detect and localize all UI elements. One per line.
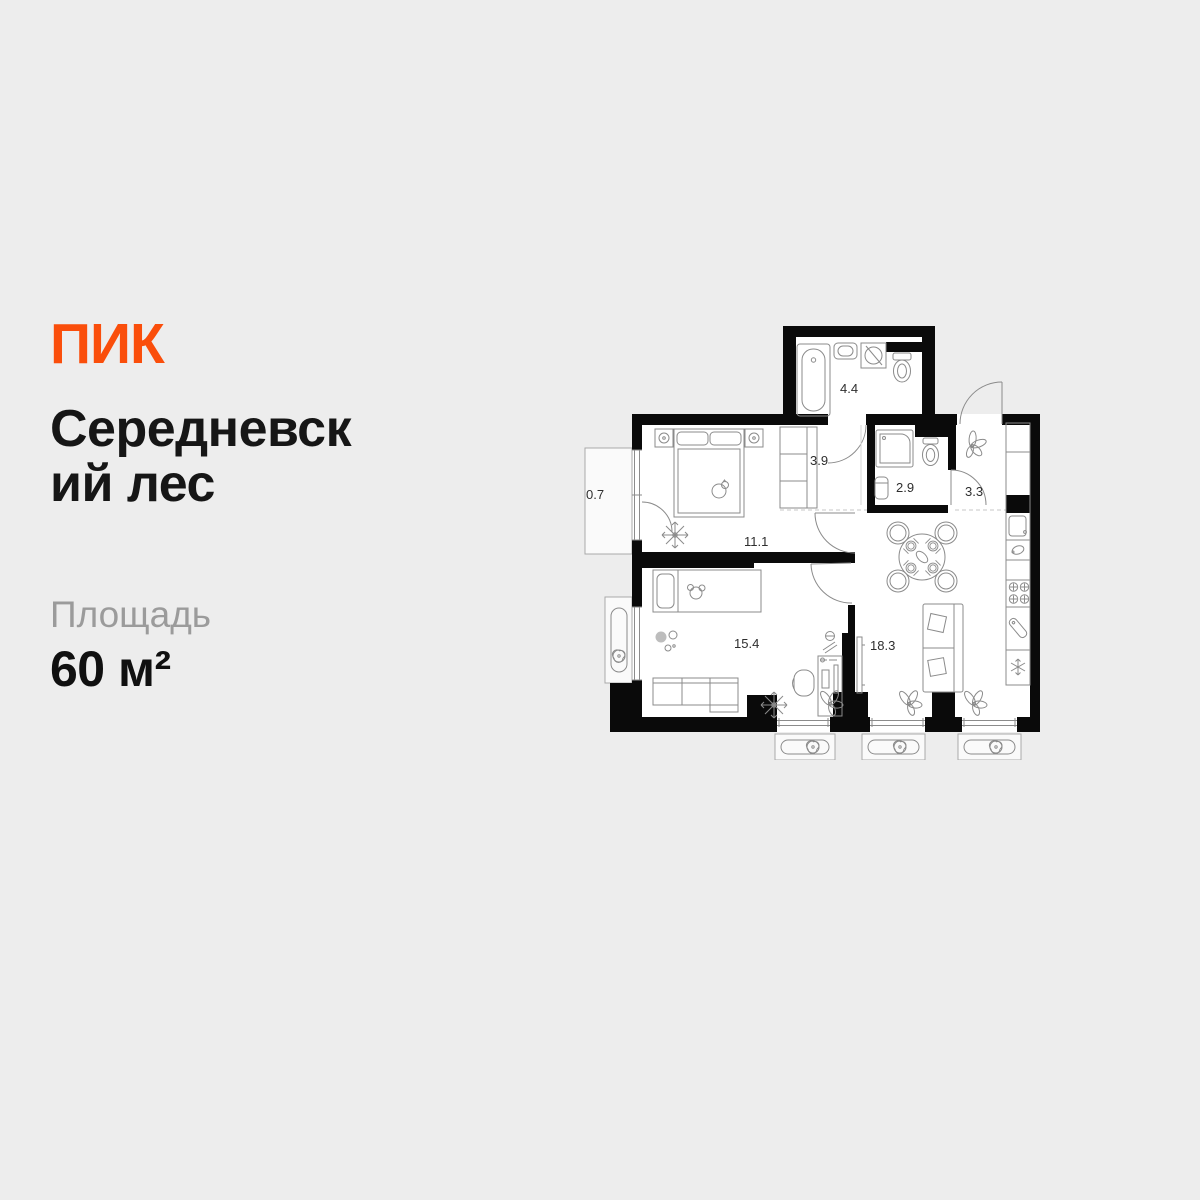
project-title-line1: Середневск <box>50 400 351 458</box>
label-entry-hall: 3.3 <box>965 484 983 499</box>
label-bathroom: 4.4 <box>840 381 858 396</box>
project-title-line2: ий лес <box>50 455 215 513</box>
label-kids-room: 15.4 <box>734 636 759 651</box>
floorplan: 0.7 4.4 3.9 2.9 3.3 11.1 15.4 18.3 <box>578 320 1058 760</box>
listing-card: ПИК Середневск ий лес Площадь 60 м² <box>0 0 1200 1200</box>
area-label: Площадь <box>50 594 211 636</box>
ac-basket-1 <box>775 734 835 760</box>
label-hallway: 3.9 <box>810 453 828 468</box>
label-balcony: 0.7 <box>586 487 604 502</box>
pik-logo: ПИК <box>50 316 164 373</box>
floor-area <box>632 326 1040 732</box>
label-toilet: 2.9 <box>896 480 914 495</box>
ac-basket-left <box>605 597 632 683</box>
project-title: Середневск ий лес <box>50 402 351 512</box>
label-bedroom: 11.1 <box>744 534 768 549</box>
label-kitchen-living: 18.3 <box>870 638 895 653</box>
floorplan-svg: 0.7 4.4 3.9 2.9 3.3 11.1 15.4 18.3 <box>578 320 1058 760</box>
area-value: 60 м² <box>50 642 171 696</box>
